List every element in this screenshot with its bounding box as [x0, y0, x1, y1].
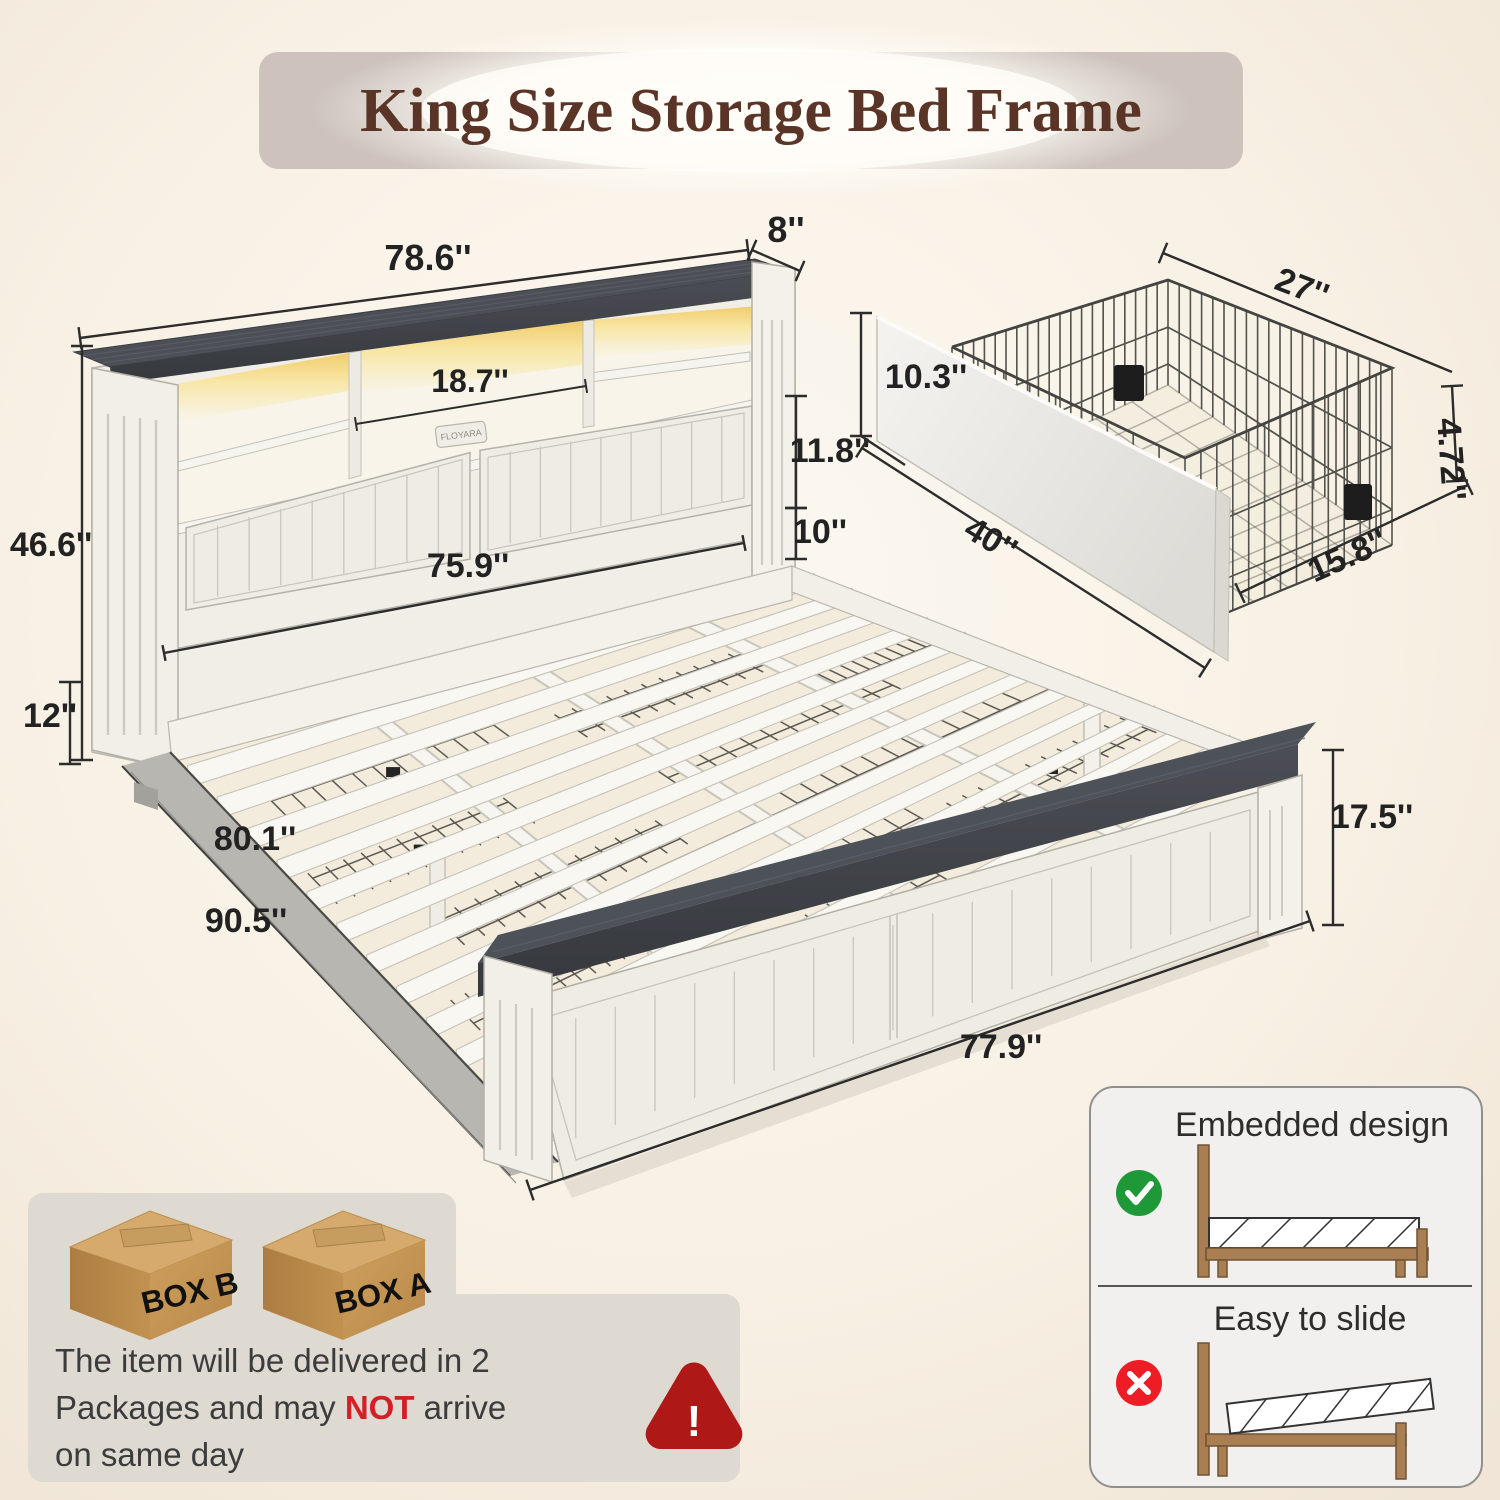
svg-text:!: !: [687, 1397, 702, 1446]
svg-text:The item will be delivered in: The item will be delivered in 2: [55, 1342, 490, 1379]
svg-text:78.6'': 78.6'': [384, 237, 471, 278]
svg-text:on same day: on same day: [55, 1436, 244, 1473]
svg-text:11.8'': 11.8'': [790, 432, 870, 470]
svg-text:Packages and may NOT arrive: Packages and may NOT arrive: [55, 1389, 506, 1426]
svg-text:17.5'': 17.5'': [1331, 798, 1413, 836]
svg-text:12'': 12'': [23, 697, 77, 735]
svg-text:10'': 10'': [793, 513, 847, 551]
svg-text:Easy to slide: Easy to slide: [1214, 1300, 1407, 1338]
svg-text:4.72'': 4.72'': [1429, 417, 1473, 502]
svg-text:King Size Storage Bed Frame: King Size Storage Bed Frame: [360, 77, 1142, 145]
svg-text:Embedded design: Embedded design: [1175, 1106, 1449, 1144]
svg-text:10.3'': 10.3'': [885, 358, 967, 396]
svg-text:8'': 8'': [767, 209, 804, 250]
svg-text:18.7'': 18.7'': [431, 363, 509, 399]
svg-text:80.1'': 80.1'': [214, 820, 296, 858]
svg-text:90.5'': 90.5'': [205, 902, 287, 940]
svg-text:75.9'': 75.9'': [427, 547, 509, 585]
svg-text:77.9'': 77.9'': [960, 1028, 1042, 1066]
svg-text:46.6'': 46.6'': [10, 526, 92, 564]
